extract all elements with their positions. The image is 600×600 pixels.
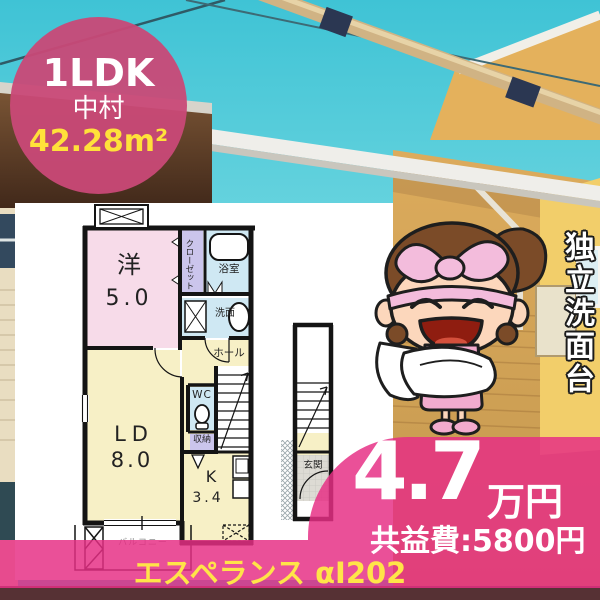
- floor-area: 42.28m²: [29, 127, 168, 157]
- property-name: エスペランス αI202: [120, 550, 420, 592]
- layout-type: 1LDK: [43, 54, 155, 92]
- location-name: 中村: [72, 96, 124, 122]
- property-badge: 1LDK 中村 42.28m²: [10, 17, 187, 194]
- rent-price: 4.7: [352, 432, 482, 512]
- listing-flyer: 洋 5.0 クローゼット 浴室 洗面 ホール WC 収納 LD 8.0 K 3.…: [0, 0, 600, 600]
